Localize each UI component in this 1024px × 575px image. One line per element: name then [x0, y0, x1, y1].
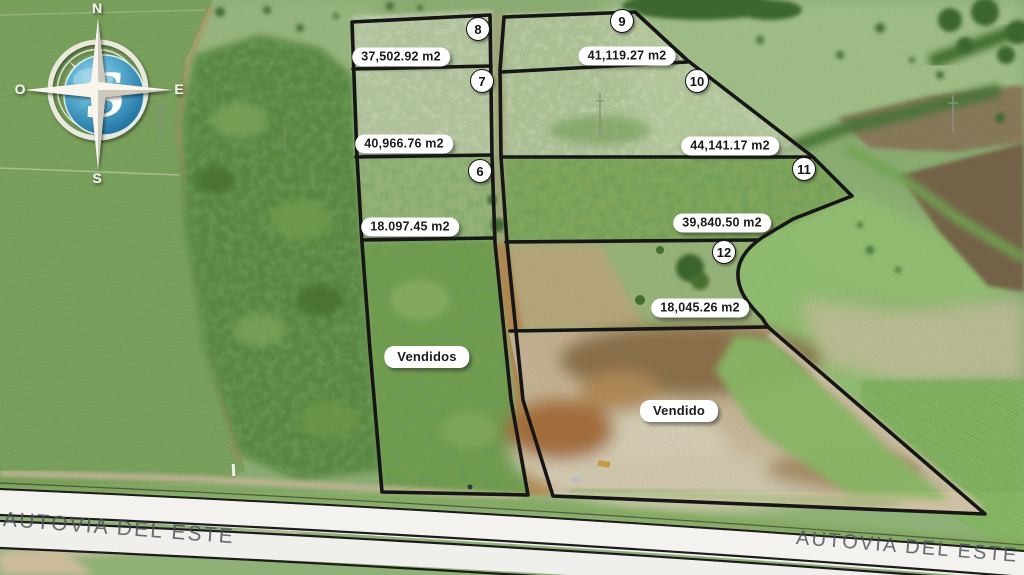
label-overlay: 8 9 7 10 6 11 12 37,502.92 m2 41,119.27 …	[0, 0, 1024, 575]
parcel-10-badge: 10	[685, 69, 709, 93]
parcel-6-area-label: 18.097.45 m2	[361, 218, 459, 237]
sold-status-label-vendidos: Vendidos	[384, 346, 469, 368]
parcel-12-number: 12	[717, 245, 731, 260]
parcel-8-number: 8	[474, 22, 481, 37]
sold-status-label-vendido: Vendido	[640, 400, 718, 422]
parcel-9-number: 9	[618, 14, 625, 29]
parcel-11-badge: 11	[792, 157, 816, 181]
highway-name-left: AUTOVIA DEL ESTE	[2, 508, 236, 549]
parcel-7-badge: 7	[470, 69, 494, 93]
parcel-8-area-label: 37,502.92 m2	[352, 48, 450, 67]
highway-name-right: AUTOVIA DEL ESTE	[795, 527, 1019, 568]
aerial-parcel-map: S N S E O 8 9 7 10	[0, 0, 1024, 575]
parcel-6-badge: 6	[468, 159, 492, 183]
parcel-10-number: 10	[690, 74, 704, 89]
parcel-11-area-label: 39,840.50 m2	[673, 214, 771, 233]
parcel-12-badge: 12	[712, 240, 736, 264]
parcel-10-area-label: 44,141.17 m2	[681, 137, 779, 156]
parcel-11-number: 11	[797, 162, 811, 177]
parcel-9-area-label: 41,119.27 m2	[579, 47, 676, 66]
parcel-7-area-label: 40,966.76 m2	[355, 135, 453, 154]
parcel-8-badge: 8	[466, 17, 490, 41]
parcel-6-number: 6	[476, 164, 483, 179]
parcel-12-area-label: 18,045.26 m2	[651, 299, 749, 318]
parcel-9-badge: 9	[610, 9, 634, 33]
parcel-7-number: 7	[478, 74, 485, 89]
